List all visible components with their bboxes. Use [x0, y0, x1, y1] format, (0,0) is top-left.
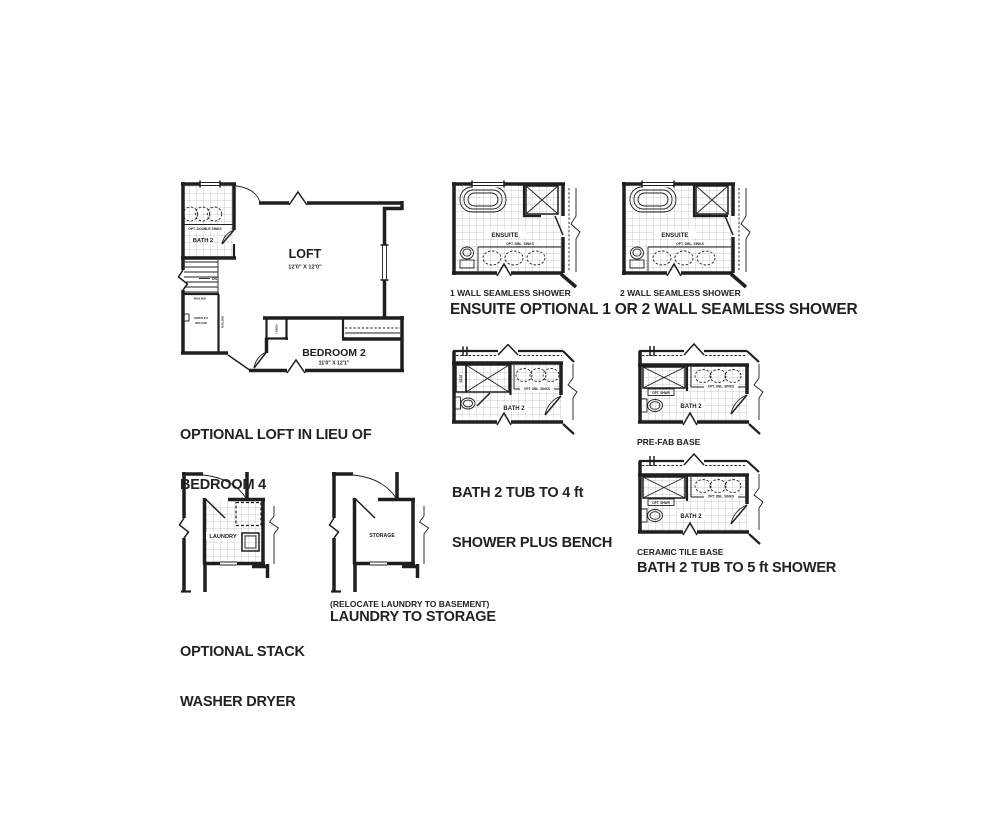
storage-note: (RELOCATE LAUNDRY TO BASEMENT)	[330, 599, 489, 609]
opt-dbl-sinks-label: OPT. DBL. SINKS	[708, 385, 734, 389]
ensuite-caption: ENSUITE OPTIONAL 1 OR 2 WALL SEAMLESS SH…	[450, 302, 857, 319]
laundry-room-label: LAUNDRY	[209, 534, 236, 540]
loft-room-dims: 12'0" X 12'0"	[288, 265, 322, 271]
bath2-4ft-caption: BATH 2 TUB TO 4 ft SHOWER PLUS BENCH	[452, 452, 612, 584]
plan-optional-loft: OPT. DOUBLE SINKS BATH 2	[175, 172, 410, 387]
loft-room-label: LOFT	[289, 247, 322, 261]
plan-ensuite-1wall: ENSUITE OPT. DBL. SINKS	[448, 176, 583, 289]
window	[380, 245, 389, 280]
opt-shwr-label: OPT. SHWR	[652, 501, 670, 505]
dn-label: DN	[212, 277, 217, 281]
ensuite-room-label: ENSUITE	[491, 232, 518, 239]
ceramic-tile-base-label: CERAMIC TILE BASE	[637, 547, 723, 557]
plan-laundry-stack: LAUNDRY	[178, 458, 313, 608]
bath2-room-label: BATH 2	[680, 404, 702, 410]
laundry-caption: OPTIONAL STACK WASHER DRYER	[180, 611, 305, 743]
wall-break	[568, 364, 577, 420]
opt-double-sinks-label: OPT. DOUBLE SINKS	[188, 227, 222, 231]
opt-dbl-sinks-label: OPT. DBL. SINKS	[524, 387, 550, 391]
opt-dbl-sinks-label: OPT. DBL. SINKS	[676, 242, 704, 246]
ensuite-1wall-label: 1 WALL SEAMLESS SHOWER	[450, 288, 571, 298]
opt-dbl-sinks-label: OPT. DBL. SINKS	[708, 495, 734, 499]
open-to-below-label: OPEN TO	[194, 316, 208, 320]
bedroom2-label: BEDROOM 2	[302, 347, 366, 359]
plan-bath2-4ft-shower: SEAT OPT. DBL. SINKS BATH 2	[448, 344, 583, 444]
bedroom-door-arc	[254, 338, 267, 368]
tile-floor	[206, 501, 261, 562]
open-to-below-label2: BELOW	[195, 321, 207, 325]
railing-label: RAILING	[194, 297, 207, 301]
ensuite-2wall-label: 2 WALL SEAMLESS SHOWER	[620, 288, 741, 298]
bath2-room-label: BATH 2	[503, 406, 525, 412]
bath2-room-label: BATH 2	[680, 514, 702, 520]
door-arc	[236, 186, 260, 202]
tile-floor	[183, 184, 234, 258]
storage-caption: LAUNDRY TO STORAGE	[330, 609, 496, 626]
plan-storage: STORAGE	[328, 458, 463, 598]
opt-shwr-label: OPT. SHWR	[652, 391, 670, 395]
bath2-label: BATH 2	[193, 238, 214, 244]
ensuite-room-label: ENSUITE	[661, 232, 688, 239]
bottom-walls	[181, 353, 404, 376]
seat-label: SEAT	[459, 374, 463, 382]
upper-strip	[453, 345, 574, 363]
plan-ensuite-2wall: ENSUITE OPT. DBL. SINKS	[618, 176, 753, 289]
bath2-5ft-caption: BATH 2 TUB TO 5 ft SHOWER	[637, 560, 836, 577]
railing-label-vertical: RAILING	[221, 315, 225, 328]
plan-bath2-5ft-prefab: OPT. SHWR OPT. DBL. SINKS BATH 2	[634, 342, 766, 437]
opt-dbl-sinks-label: OPT. DBL. SINKS	[506, 242, 534, 246]
prefab-base-label: PRE-FAB BASE	[637, 437, 700, 447]
plan-bath2-5ft-ceramic: OPT. SHWR OPT. DBL. SINKS BATH 2	[634, 452, 766, 547]
bedroom2-dims: 11'0" X 12'1"	[319, 361, 350, 367]
storage-room-label: STORAGE	[369, 533, 395, 539]
linen-label: LINEN	[275, 324, 279, 334]
floorplan-options-sheet: OPT. DOUBLE SINKS BATH 2	[0, 0, 990, 819]
